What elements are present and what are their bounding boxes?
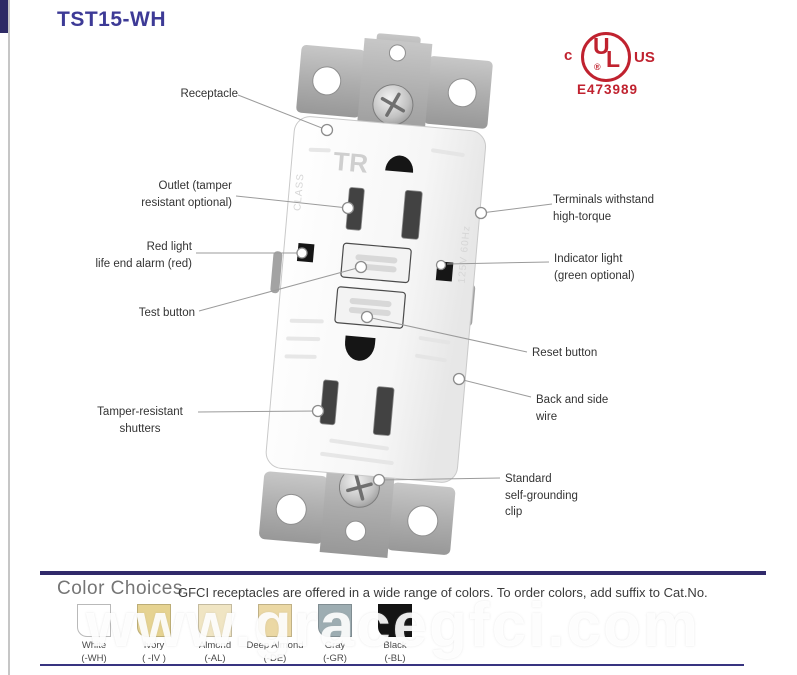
callout-label-terminals: Terminals withstand high-torque (553, 192, 683, 225)
callout-line-back-side-wire (459, 379, 531, 397)
callout-marker-receptacle (322, 125, 333, 136)
callout-label-grounding-clip: Standard self-grounding clip (505, 471, 615, 521)
product-spec-page: TST15-WH c U L ® US E473989 (0, 0, 797, 675)
callout-line-tamper-shutters (198, 411, 318, 412)
callout-label-receptacle: Receptacle (138, 86, 238, 103)
callout-markers (297, 125, 487, 486)
site-watermark: www.gracegfci.com (86, 590, 700, 661)
callout-line-outlet (236, 196, 348, 208)
bottom-divider-line (40, 664, 744, 666)
callout-line-receptacle (238, 95, 327, 130)
section-divider-bar (40, 571, 766, 575)
callout-marker-outlet (343, 203, 354, 214)
callout-marker-test-button (356, 262, 367, 273)
callout-label-back-side-wire: Back and side wire (536, 392, 646, 425)
callout-line-terminals (481, 204, 552, 213)
callout-marker-red-light (297, 248, 307, 258)
callout-line-test-button (199, 267, 361, 311)
callout-label-outlet: Outlet (tamper resistant optional) (101, 178, 232, 211)
callout-marker-indicator (437, 261, 446, 270)
callout-marker-grounding-clip (374, 475, 385, 486)
callout-label-tamper-shutters: Tamper-resistant shutters (85, 404, 195, 437)
callout-label-test-button: Test button (95, 305, 195, 322)
callout-label-red-light: Red light life end alarm (red) (85, 239, 192, 272)
callout-lines (196, 95, 552, 480)
callout-label-indicator: Indicator light (green optional) (554, 251, 684, 284)
callout-marker-back-side-wire (454, 374, 465, 385)
callout-label-reset-button: Reset button (532, 345, 642, 362)
callout-marker-tamper-shutters (313, 406, 324, 417)
callout-marker-reset-button (362, 312, 373, 323)
callout-line-grounding-clip (379, 478, 500, 480)
callout-marker-terminals (476, 208, 487, 219)
callout-line-reset-button (367, 317, 527, 352)
callout-line-indicator (447, 262, 549, 264)
